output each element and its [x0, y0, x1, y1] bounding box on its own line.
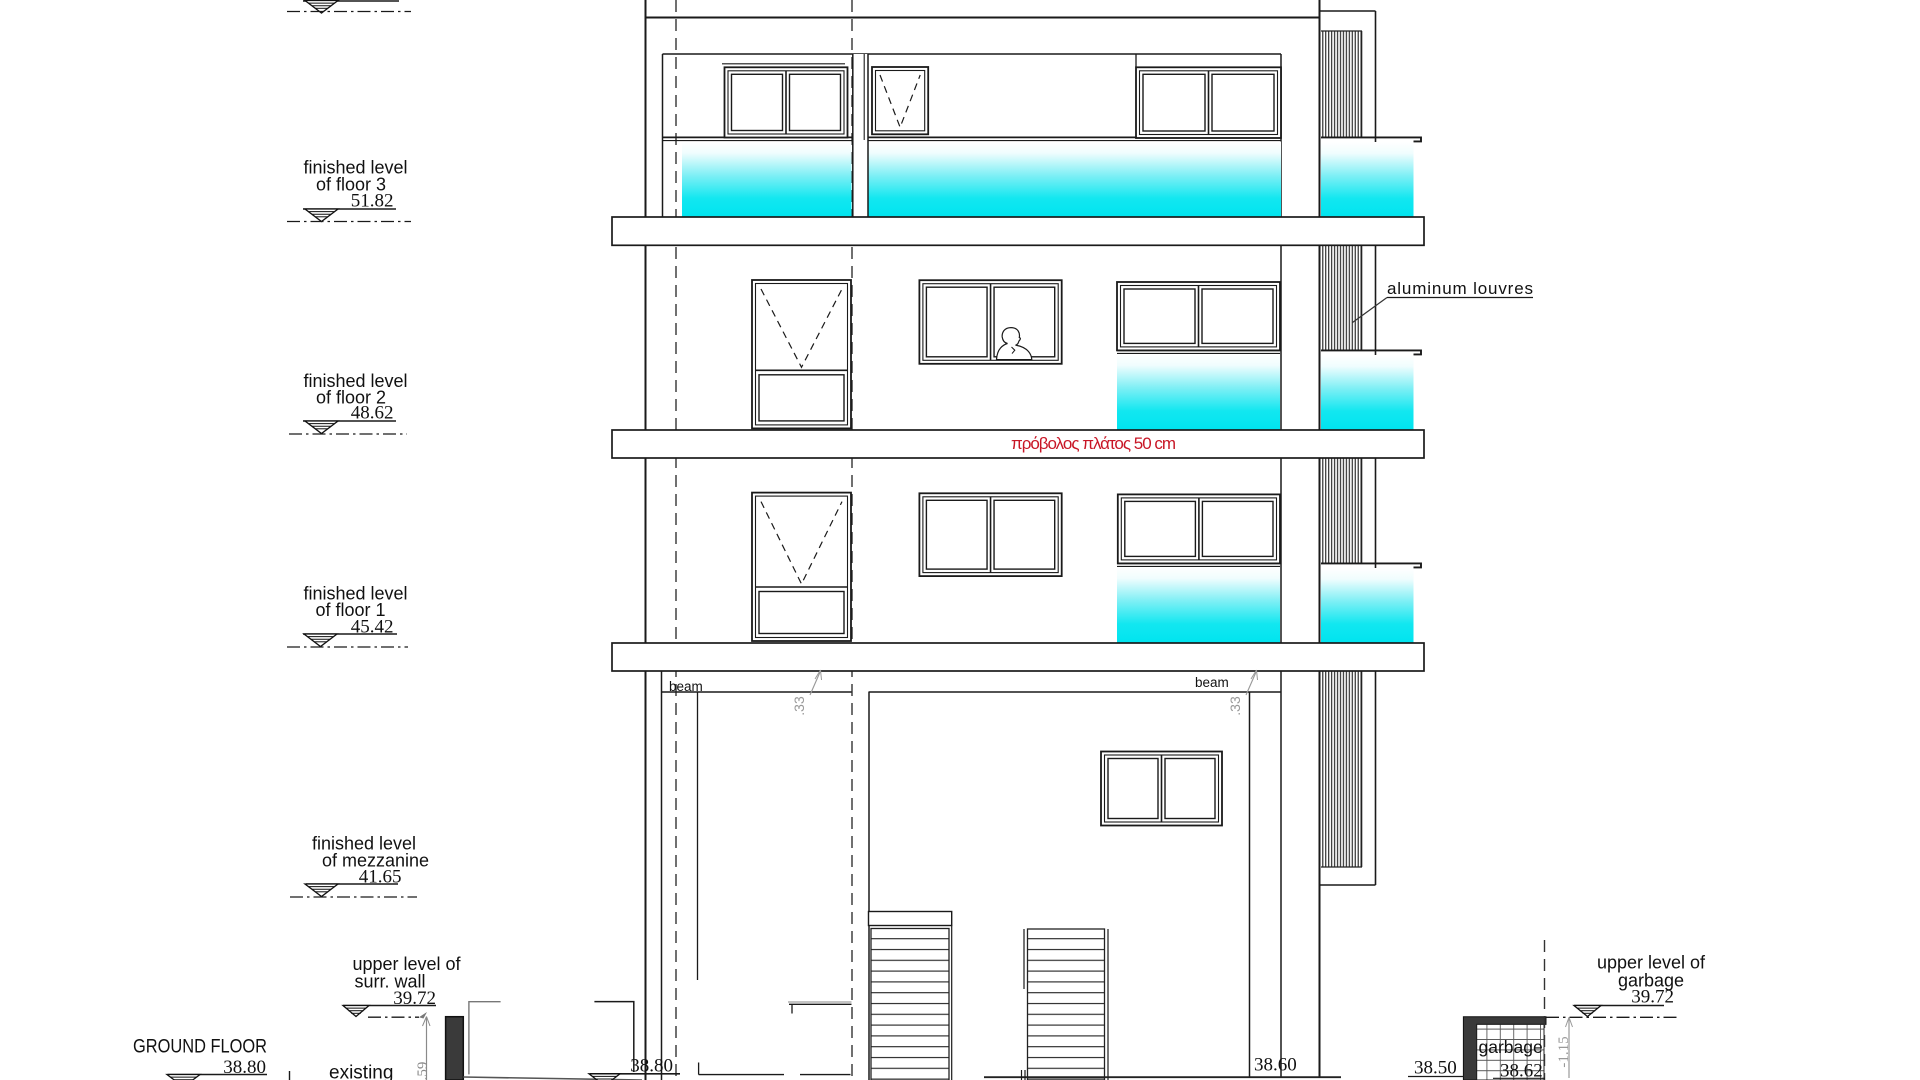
svg-text:38.50: 38.50 — [1414, 1058, 1457, 1079]
svg-text:aluminum louvres: aluminum louvres — [1387, 279, 1533, 298]
svg-text:πρόβολος πλάτος 50 cm: πρόβολος πλάτος 50 cm — [1011, 434, 1176, 453]
svg-text:existing: existing — [329, 1063, 393, 1080]
svg-text:38.62: 38.62 — [1500, 1061, 1543, 1080]
svg-text:.33: .33 — [791, 696, 807, 716]
svg-text:beam: beam — [1195, 675, 1229, 690]
svg-text:beam: beam — [669, 679, 703, 694]
svg-text:upper level of: upper level of — [1597, 953, 1706, 973]
svg-text:.59: .59 — [415, 1062, 431, 1080]
svg-text:GROUND FLOOR: GROUND FLOOR — [133, 1036, 267, 1058]
svg-text:-1.15: -1.15 — [1556, 1036, 1572, 1067]
svg-text:38.60: 38.60 — [1254, 1055, 1297, 1076]
svg-text:.33: .33 — [1227, 696, 1243, 716]
svg-text:39.72: 39.72 — [1631, 987, 1674, 1008]
svg-text:garbage: garbage — [1479, 1037, 1543, 1057]
